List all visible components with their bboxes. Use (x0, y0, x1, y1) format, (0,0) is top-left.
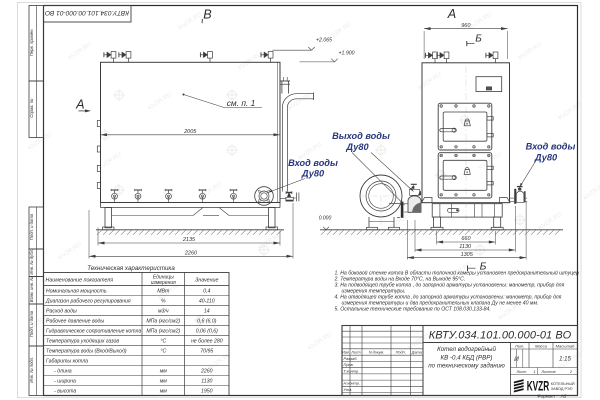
svg-text:Котел водогрейный: Котел водогрейный (437, 346, 496, 353)
svg-text:1:15: 1:15 (559, 357, 571, 363)
svg-text:Ду80: Ду80 (301, 169, 325, 179)
svg-text:Значение: Значение (195, 278, 218, 284)
svg-text:Рабочее давление воды: Рабочее давление воды (46, 319, 104, 325)
svg-text:Пров.: Пров. (344, 362, 354, 367)
svg-text:1305: 1305 (461, 252, 474, 258)
svg-text:Дата: Дата (411, 350, 422, 354)
svg-text:Справ. №: Справ. № (29, 98, 34, 117)
svg-text:Выход воды: Выход воды (332, 131, 390, 141)
svg-text:40-110: 40-110 (199, 299, 215, 305)
svg-text:0,6 (6,0): 0,6 (6,0) (197, 319, 217, 325)
svg-text:1: 1 (533, 369, 535, 374)
svg-text:Номинальная мощность: Номинальная мощность (46, 289, 107, 295)
svg-text:Инв. № дубл.: Инв. № дубл. (29, 249, 34, 275)
svg-text:960: 960 (461, 23, 471, 29)
svg-text:мм: мм (160, 379, 168, 385)
svg-text:14: 14 (204, 309, 210, 315)
svg-text:KVZR: KVZR (527, 378, 550, 394)
svg-text:мм: мм (160, 369, 168, 375)
svg-text:Перв. примен.: Перв. примен. (29, 28, 34, 56)
svg-text:Диапазон рабочего регулировани: Диапазон рабочего регулирования (45, 299, 131, 305)
svg-text:Подп.: Подп. (396, 350, 406, 354)
svg-text:Техническая характеристика: Техническая характеристика (87, 265, 175, 272)
svg-text:Ду80: Ду80 (345, 142, 369, 152)
svg-text:Гидравлическое сопротивление к: Гидравлическое сопротивление котла (46, 329, 141, 335)
svg-text:Габариты котла: Габариты котла (46, 359, 88, 365)
svg-text:И: И (514, 356, 519, 363)
svg-text:4. На отводящей трубе котла ,: 4. На отводящей трубе котла ,до запорной… (335, 294, 562, 301)
svg-text:0,4: 0,4 (203, 289, 210, 295)
svg-text:0.000: 0.000 (319, 216, 332, 222)
svg-text:КВТУ.034.101.00.000-01 ВО: КВТУ.034.101.00.000-01 ВО (429, 330, 572, 342)
svg-text:1130: 1130 (459, 244, 472, 250)
svg-text:КВТУ.034.101.00.000-01 ВО: КВТУ.034.101.00.000-01 ВО (45, 9, 129, 16)
svg-text:ЗАВОД РЭП: ЗАВОД РЭП (551, 387, 573, 391)
svg-text:Расход воды: Расход воды (46, 309, 77, 315)
svg-text:2260: 2260 (184, 251, 198, 257)
svg-text:м3/ч: м3/ч (158, 309, 169, 315)
svg-text:2135: 2135 (182, 237, 196, 243)
svg-text:Масштаб: Масштаб (556, 343, 575, 348)
svg-text:А: А (75, 98, 84, 112)
svg-text:N докум.: N докум. (369, 350, 384, 354)
svg-text:В: В (203, 8, 211, 22)
svg-text:Разраб.: Разраб. (344, 356, 358, 361)
svg-text:Лист: Лист (515, 369, 527, 374)
svg-text:не более 280: не более 280 (191, 339, 223, 345)
svg-text:°С: °С (160, 349, 166, 355)
svg-text:3. На подводящей трубе котла: 3. На подводящей трубе котла , до запорн… (335, 282, 565, 289)
svg-text:КОТЕЛЬНЫЙ: КОТЕЛЬНЫЙ (551, 382, 575, 386)
svg-text:°С: °С (160, 339, 166, 345)
svg-text:Вход воды: Вход воды (288, 158, 338, 168)
svg-text:Лит.: Лит. (514, 343, 524, 348)
svg-text:Листов: Листов (540, 369, 555, 374)
svg-text:%: % (161, 299, 166, 305)
svg-text:0,06 (0,6): 0,06 (0,6) (196, 329, 218, 335)
svg-text:Ду80: Ду80 (534, 152, 558, 162)
svg-text:КВ -0,4 КБД (РВР): КВ -0,4 КБД (РВР) (441, 354, 493, 361)
svg-text:МПа (кгс/см2): МПа (кгс/см2) (146, 329, 180, 335)
svg-text:- ширина: - ширина (54, 379, 76, 385)
svg-text:Взам. инв. №: Взам. инв. № (29, 276, 34, 302)
svg-text:Инв. № подл.: Инв. № подл. (29, 357, 34, 383)
svg-text:Наименование показателя: Наименование показателя (46, 278, 114, 284)
svg-text:5. Остальные технические треб: 5. Остальные технические требования по О… (335, 307, 491, 313)
svg-text:Б: Б (475, 34, 482, 45)
svg-text:Температура воды (Вход/Выход): Температура воды (Вход/Выход) (46, 349, 127, 355)
svg-text:измерения: измерения (151, 280, 176, 286)
svg-text:1950: 1950 (201, 389, 213, 395)
svg-text:Вход воды: Вход воды (526, 141, 576, 151)
svg-text:МВт: МВт (157, 289, 170, 295)
svg-text:Температура уходящих газов: Температура уходящих газов (46, 339, 119, 345)
svg-text:Изм.: Изм. (342, 350, 350, 354)
svg-text:мм: мм (160, 389, 168, 395)
svg-text:2260: 2260 (200, 369, 213, 375)
svg-text:2005: 2005 (183, 129, 197, 135)
svg-text:А3: А3 (560, 394, 567, 399)
svg-text:Формат: Формат (537, 394, 555, 399)
svg-text:1130: 1130 (201, 379, 212, 385)
svg-text:- длина: - длина (54, 369, 72, 375)
svg-text:Н.контр.: Н.контр. (344, 381, 360, 386)
svg-text:МПа (кгс/см2): МПа (кгс/см2) (146, 319, 180, 325)
svg-text:+1.900: +1.900 (338, 51, 354, 57)
svg-text:Подп. и дата: Подп. и дата (29, 213, 34, 240)
svg-text:660: 660 (461, 236, 471, 242)
svg-text:Масса: Масса (535, 343, 548, 348)
svg-text:- высота: - высота (54, 389, 76, 395)
svg-text:Лист: Лист (350, 350, 360, 354)
svg-text:1. На боковой стенке котла В: 1. На боковой стенке котла В области топ… (335, 270, 579, 277)
svg-text:+2.065: +2.065 (316, 38, 332, 44)
svg-text:Утв.: Утв. (344, 387, 353, 392)
svg-text:Подп. и дата: Подп. и дата (29, 310, 34, 337)
svg-text:по техническому заданию: по техническому заданию (428, 363, 505, 370)
svg-text:70/95: 70/95 (200, 349, 213, 355)
svg-text:см. п. 1: см. п. 1 (227, 98, 256, 108)
svg-text:А: А (447, 7, 456, 21)
svg-text:Т.контр.: Т.контр. (344, 368, 360, 373)
